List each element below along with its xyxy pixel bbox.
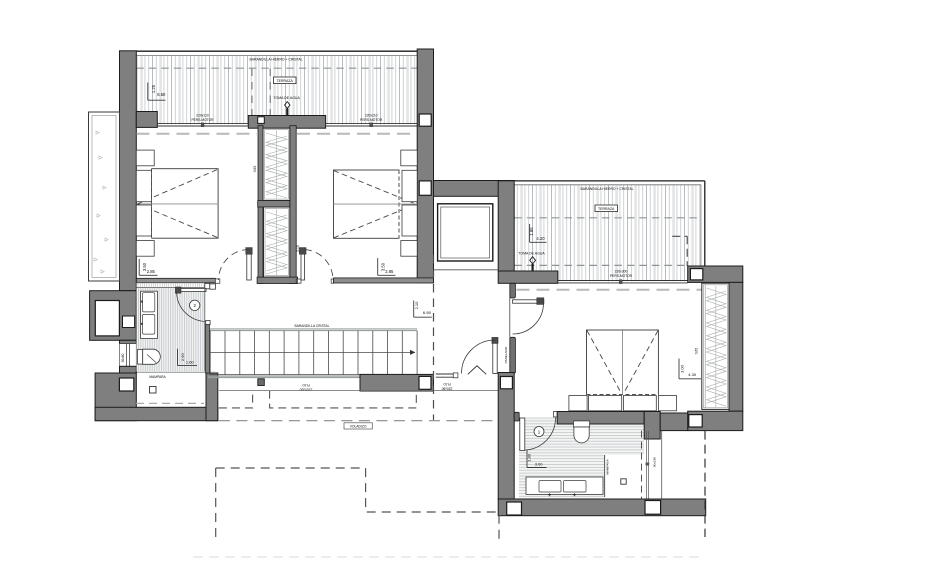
svg-text:VOLADIZO: VOLADIZO <box>350 424 367 428</box>
svg-text:90x180: 90x180 <box>652 457 656 467</box>
svg-text:1.25: 1.25 <box>151 84 156 93</box>
svg-text:BARANDILLA HIERRO + CRISTAL: BARANDILLA HIERRO + CRISTAL <box>581 187 634 191</box>
svg-text:220x210: 220x210 <box>196 114 209 118</box>
svg-text:2.85: 2.85 <box>385 269 394 274</box>
svg-text:TOMA DE AGUA: TOMA DE AGUA <box>518 251 545 255</box>
svg-text:4.30: 4.30 <box>688 372 697 377</box>
svg-text:MAMPARA: MAMPARA <box>149 375 166 379</box>
svg-text:TERRAZA: TERRAZA <box>598 207 615 211</box>
svg-text:220x300: 220x300 <box>615 270 628 274</box>
svg-text:4.20: 4.20 <box>536 236 545 241</box>
svg-text:2.90: 2.90 <box>180 353 185 362</box>
svg-text:FIJO: FIJO <box>443 382 451 386</box>
svg-text:6.50: 6.50 <box>157 92 166 97</box>
svg-text:BARANDILLA HIERRO + CRISTAL: BARANDILLA HIERRO + CRISTAL <box>250 57 303 61</box>
svg-text:BARANDILLA CRISTAL: BARANDILLA CRISTAL <box>295 324 330 328</box>
svg-text:220x210: 220x210 <box>365 114 378 118</box>
svg-text:1.85: 1.85 <box>529 227 534 236</box>
svg-text:3.00: 3.00 <box>680 364 685 373</box>
svg-text:90x60: 90x60 <box>121 353 125 362</box>
svg-text:FIJO: FIJO <box>302 383 310 387</box>
svg-text:2.10: 2.10 <box>414 301 419 310</box>
svg-text:TOMA DE AGUA: TOMA DE AGUA <box>273 96 300 100</box>
svg-text:PERS.MOTOR: PERS.MOTOR <box>610 274 633 278</box>
svg-text:1.60: 1.60 <box>186 359 195 364</box>
svg-text:2.85: 2.85 <box>147 269 156 274</box>
svg-text:3.00: 3.00 <box>535 461 544 466</box>
svg-text:PERS.MOTOR: PERS.MOTOR <box>360 118 383 122</box>
svg-text:MAMPARA: MAMPARA <box>606 458 610 474</box>
svg-text:0.65: 0.65 <box>694 348 698 355</box>
svg-text:1.80: 1.80 <box>527 453 532 462</box>
svg-text:6.95: 6.95 <box>423 310 432 315</box>
svg-text:TERRAZA: TERRAZA <box>277 79 294 83</box>
svg-text:220x60: 220x60 <box>441 386 452 390</box>
svg-text:PERS.MOTOR: PERS.MOTOR <box>191 118 214 122</box>
svg-text:PANELADO: PANELADO <box>504 346 508 363</box>
svg-text:0.65: 0.65 <box>253 166 257 173</box>
